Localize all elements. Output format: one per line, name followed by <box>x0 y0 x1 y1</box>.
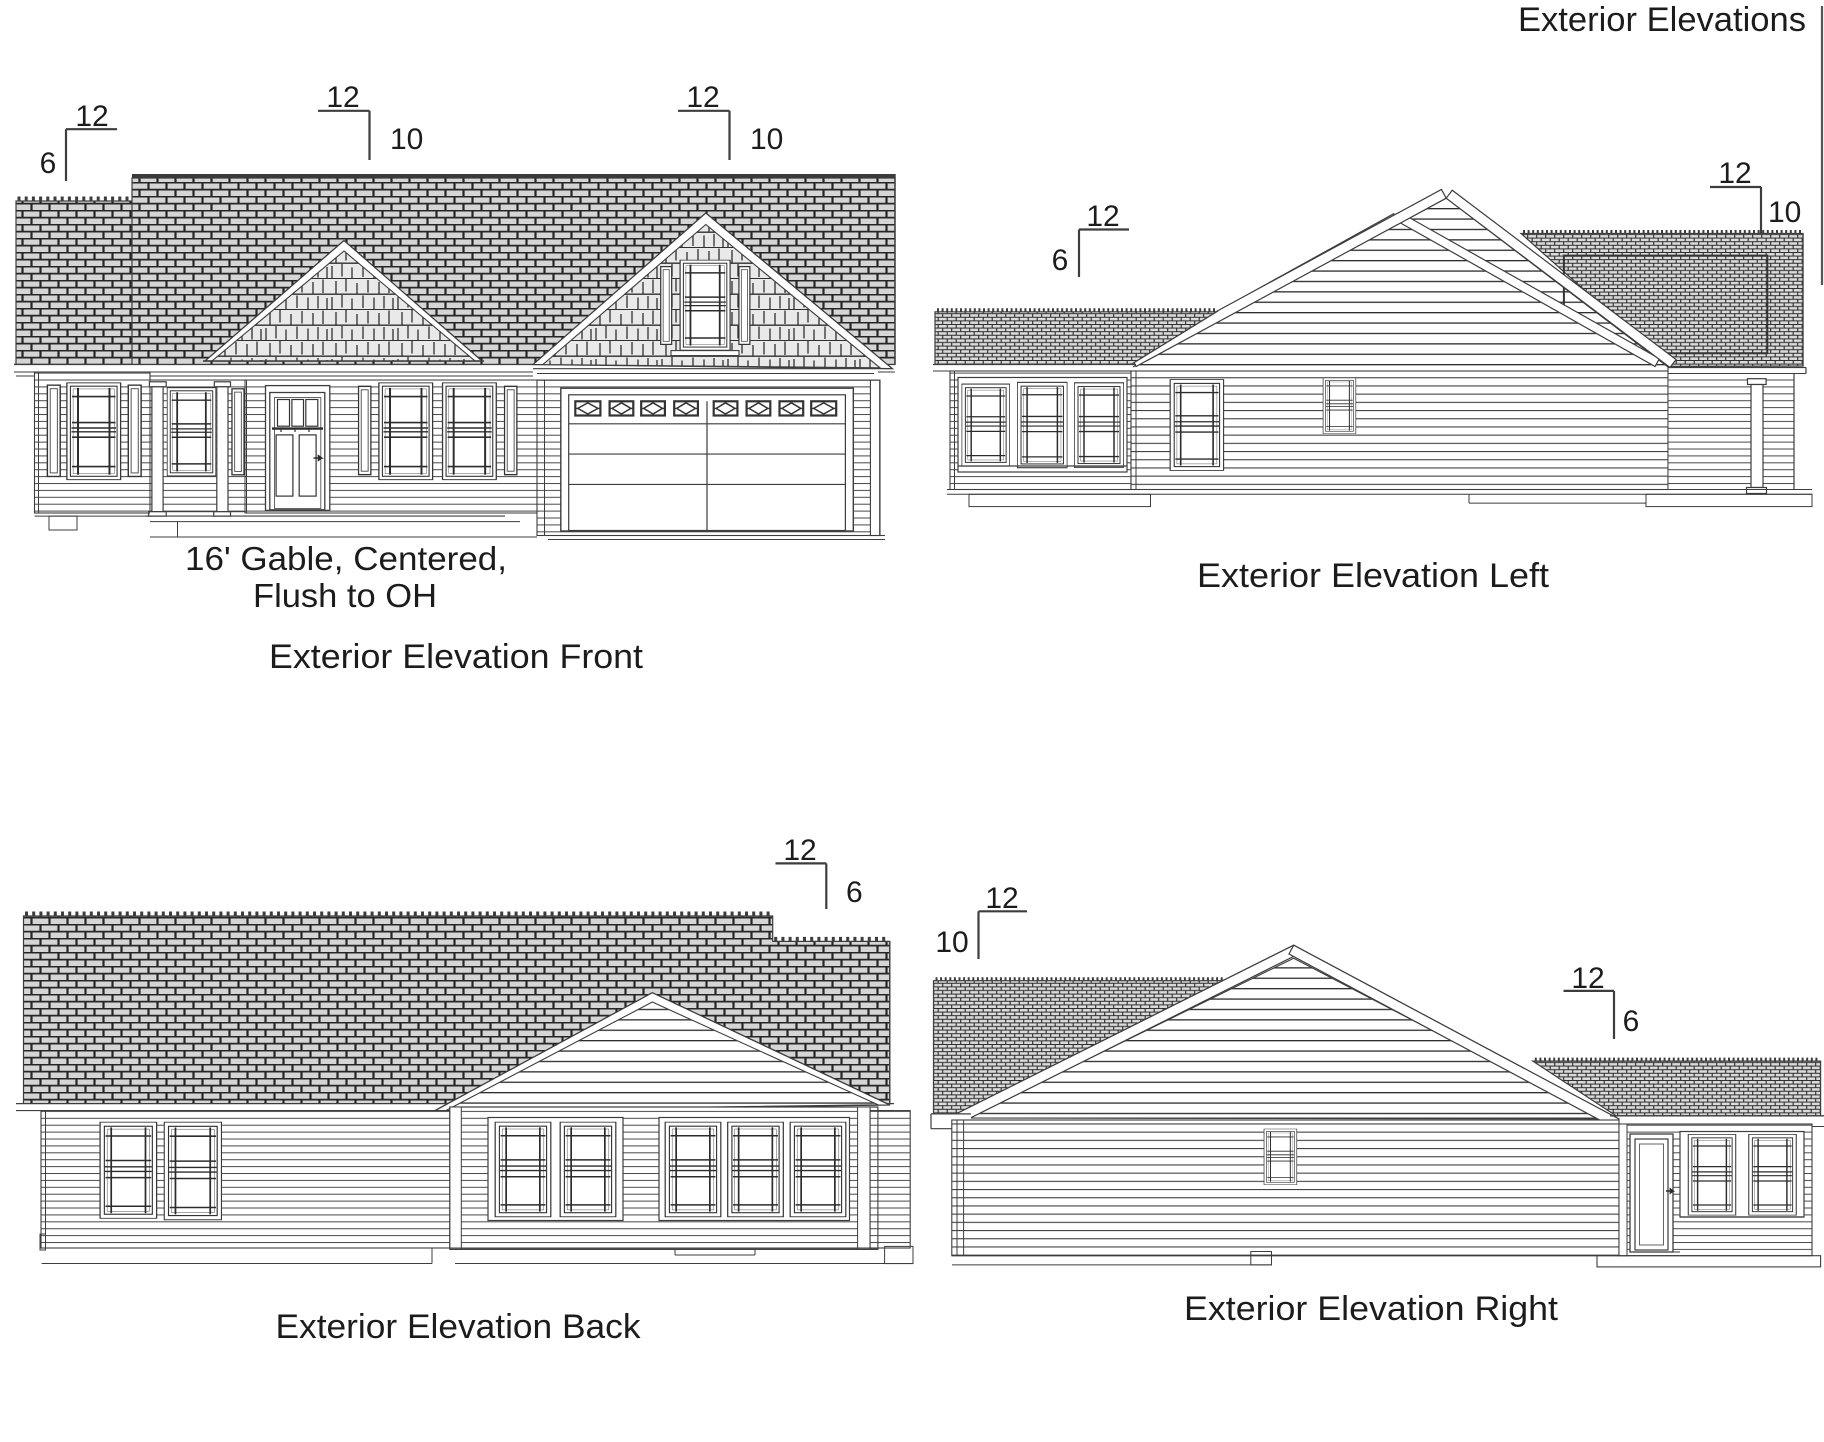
svg-text:12: 12 <box>326 81 359 114</box>
svg-text:12: 12 <box>783 834 816 867</box>
svg-text:6: 6 <box>846 876 863 909</box>
svg-text:Flush to OH: Flush to OH <box>253 577 437 614</box>
svg-text:12: 12 <box>686 81 719 114</box>
svg-text:6: 6 <box>1623 1005 1640 1038</box>
svg-text:10: 10 <box>390 123 423 156</box>
svg-text:6: 6 <box>1052 244 1069 277</box>
svg-text:Exterior Elevation Left: Exterior Elevation Left <box>1197 557 1550 595</box>
svg-text:16' Gable, Centered,: 16' Gable, Centered, <box>185 540 507 577</box>
svg-text:Exterior Elevations: Exterior Elevations <box>1518 1 1806 39</box>
svg-text:10: 10 <box>1768 196 1801 229</box>
svg-text:Exterior Elevation Right: Exterior Elevation Right <box>1184 1290 1559 1328</box>
svg-text:12: 12 <box>75 100 108 133</box>
svg-text:12: 12 <box>985 882 1018 915</box>
svg-text:6: 6 <box>40 147 57 180</box>
svg-text:10: 10 <box>935 926 968 959</box>
svg-text:12: 12 <box>1718 157 1751 190</box>
svg-text:Exterior Elevation Back: Exterior Elevation Back <box>276 1308 642 1346</box>
svg-text:12: 12 <box>1086 200 1119 233</box>
svg-text:Exterior Elevation Front: Exterior Elevation Front <box>269 638 644 676</box>
svg-text:10: 10 <box>750 123 783 156</box>
